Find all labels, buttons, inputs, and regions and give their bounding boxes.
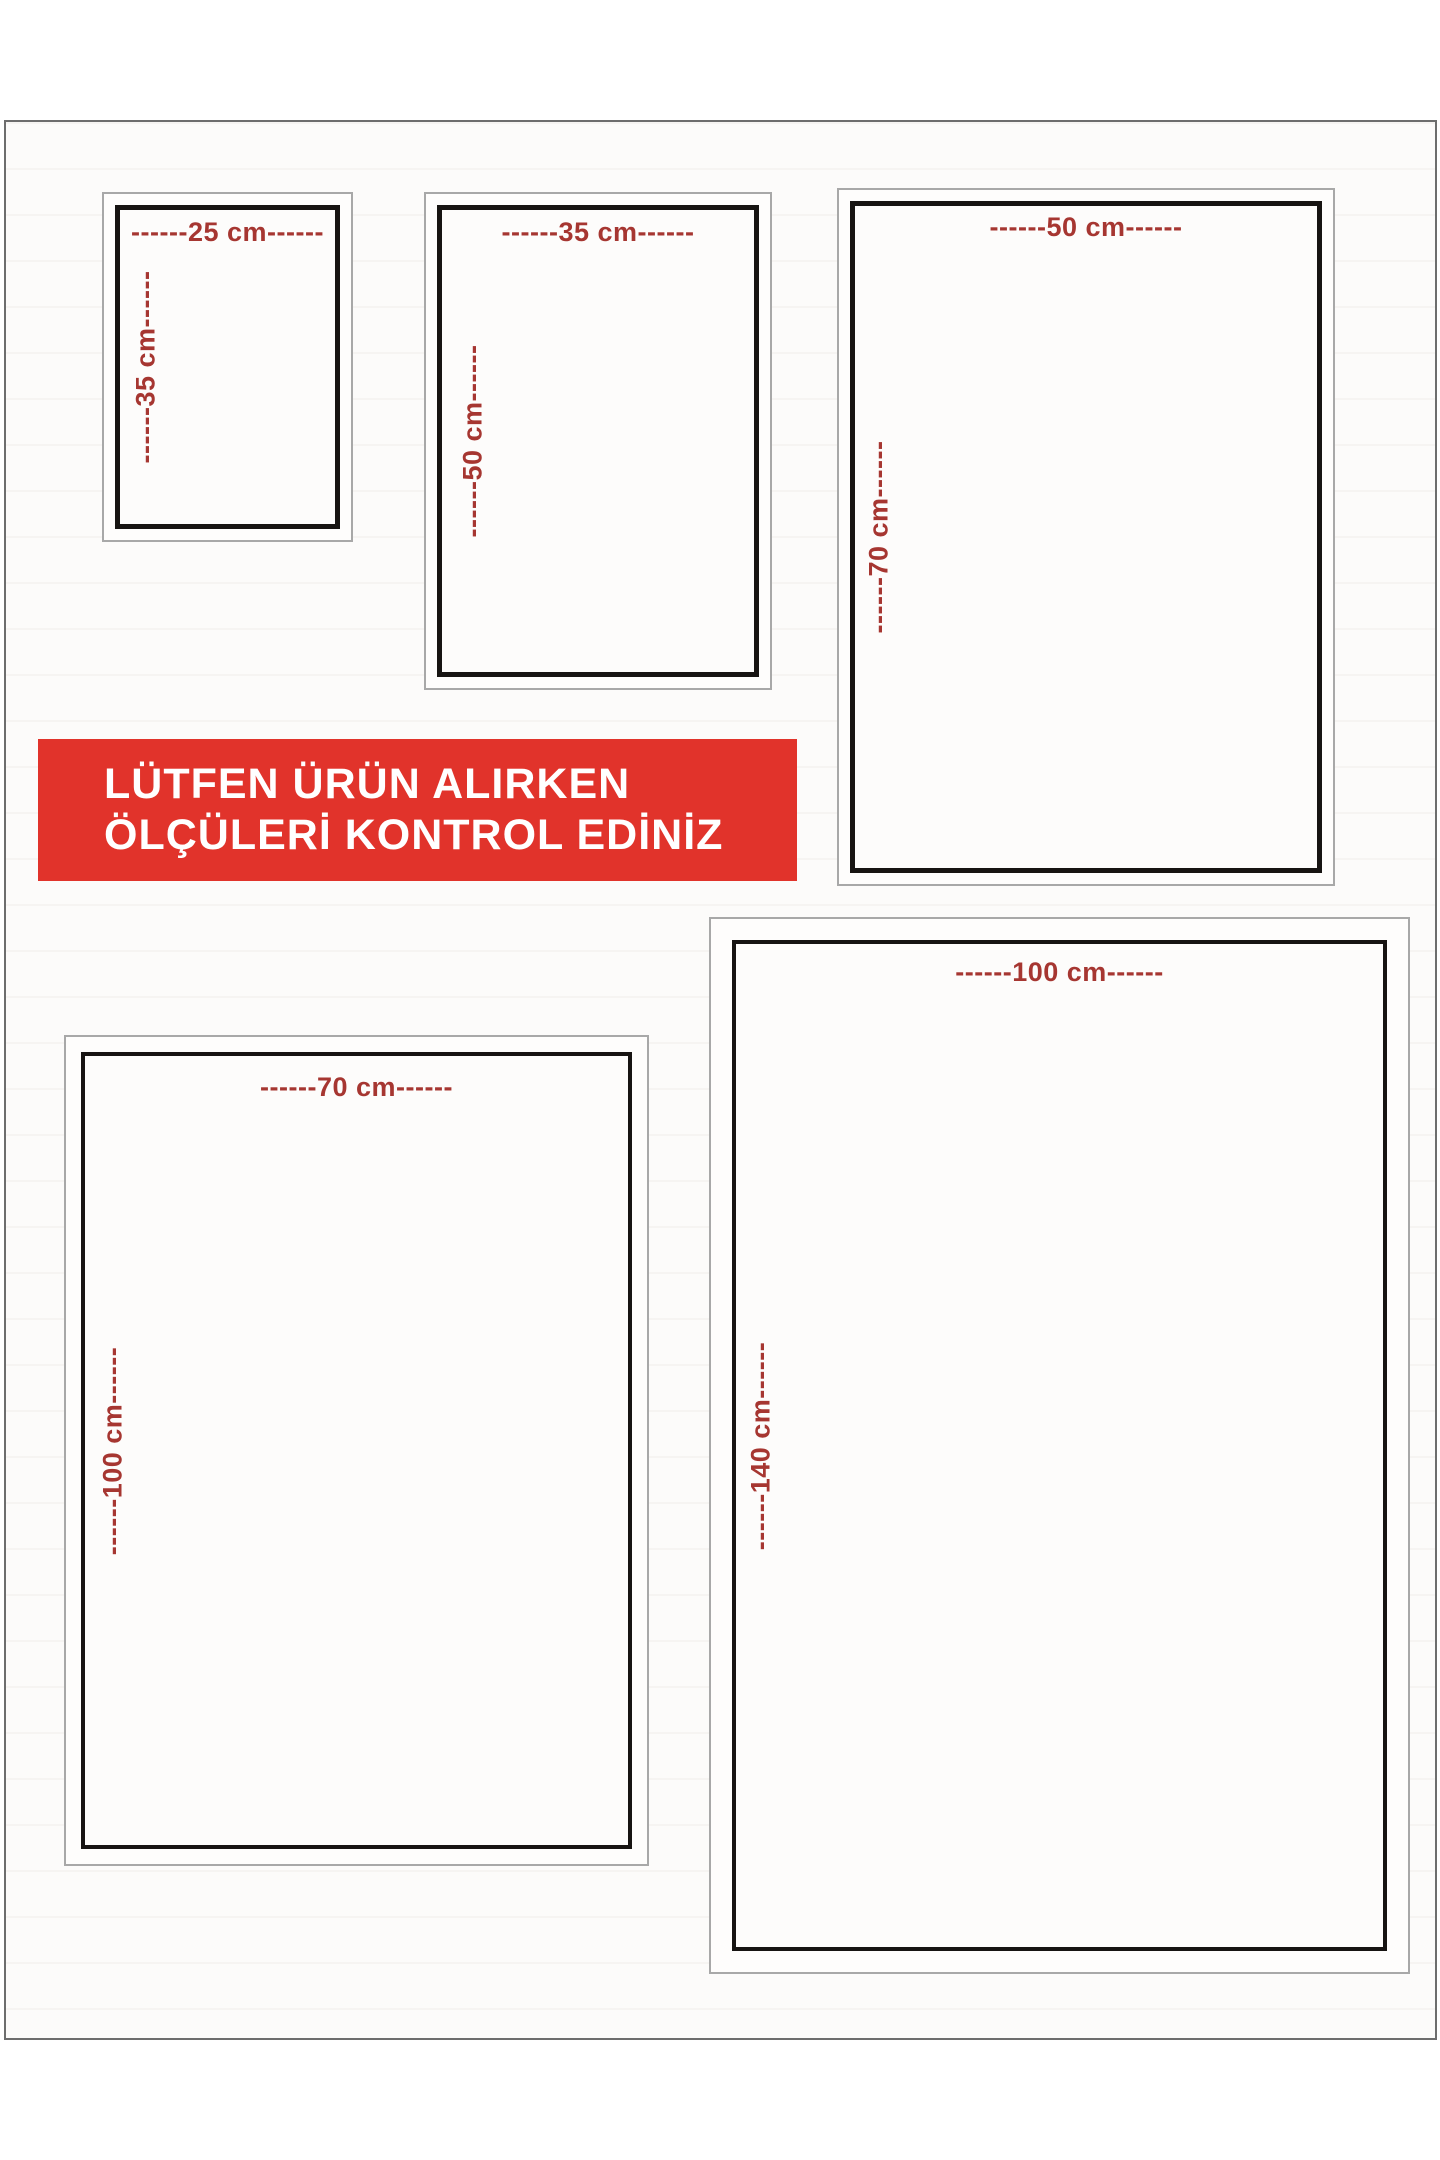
size-box-35x50-frame: ------35 cm------ ------50 cm------ <box>437 205 759 677</box>
warning-banner-line-1: LÜTFEN ÜRÜN ALIRKEN <box>104 759 797 810</box>
height-dimension-label: ------50 cm------ <box>460 345 487 538</box>
height-dimension-label: ------35 cm------ <box>133 271 160 464</box>
size-box-100x140: ------100 cm------ ------140 cm------ <box>709 917 1410 1974</box>
height-dimension-label: ------70 cm------ <box>866 441 893 634</box>
width-dimension-label: ------70 cm------ <box>85 1074 628 1101</box>
size-box-25x35: ------25 cm------ ------35 cm------ <box>102 192 353 542</box>
size-box-35x50: ------35 cm------ ------50 cm------ <box>424 192 772 690</box>
width-dimension-label: ------50 cm------ <box>855 214 1317 241</box>
height-dimension-label: ------140 cm------ <box>748 1341 775 1549</box>
warning-banner: LÜTFEN ÜRÜN ALIRKEN ÖLÇÜLERİ KONTROL EDİ… <box>38 739 797 881</box>
width-dimension-label: ------35 cm------ <box>442 219 754 246</box>
size-box-70x100-frame: ------70 cm------ ------100 cm------ <box>81 1052 632 1849</box>
size-box-100x140-frame: ------100 cm------ ------140 cm------ <box>732 940 1387 1951</box>
warning-banner-line-2: ÖLÇÜLERİ KONTROL EDİNİZ <box>104 810 797 861</box>
size-box-25x35-frame: ------25 cm------ ------35 cm------ <box>115 205 340 529</box>
size-box-70x100: ------70 cm------ ------100 cm------ <box>64 1035 649 1866</box>
size-box-50x70: ------50 cm------ ------70 cm------ <box>837 188 1335 886</box>
size-box-50x70-frame: ------50 cm------ ------70 cm------ <box>850 201 1322 873</box>
width-dimension-label: ------25 cm------ <box>120 219 335 246</box>
height-dimension-label: ------100 cm------ <box>100 1346 127 1554</box>
width-dimension-label: ------100 cm------ <box>736 959 1383 986</box>
